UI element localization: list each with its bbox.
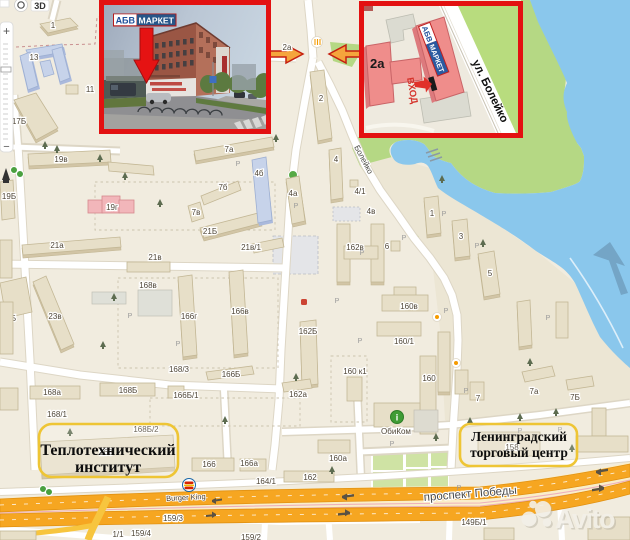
svg-text:Р: Р	[176, 341, 181, 348]
svg-text:7: 7	[476, 394, 481, 403]
svg-text:4а: 4а	[289, 189, 298, 198]
svg-text:21в: 21в	[148, 253, 161, 262]
svg-text:Р: Р	[128, 313, 133, 320]
svg-text:168/3: 168/3	[169, 365, 190, 374]
svg-text:162Б: 162Б	[299, 327, 318, 336]
svg-text:149Б/1: 149Б/1	[461, 518, 487, 527]
svg-text:2: 2	[319, 94, 324, 103]
svg-text:1: 1	[430, 209, 435, 218]
svg-text:160а: 160а	[329, 454, 347, 463]
svg-text:Р: Р	[402, 235, 407, 242]
svg-text:19г: 19г	[106, 203, 118, 212]
svg-text:159/3: 159/3	[163, 514, 184, 523]
svg-text:торговый центр: торговый центр	[470, 445, 568, 460]
svg-text:162: 162	[303, 473, 317, 482]
svg-text:4: 4	[334, 155, 339, 164]
svg-text:19Б: 19Б	[2, 192, 16, 201]
svg-text:4в: 4в	[367, 207, 376, 216]
svg-text:7в: 7в	[192, 208, 201, 217]
svg-text:Р: Р	[358, 338, 363, 345]
svg-text:−: −	[3, 141, 9, 153]
svg-text:Р: Р	[442, 211, 447, 218]
svg-text:7Б: 7Б	[570, 393, 580, 402]
svg-text:160: 160	[422, 374, 436, 383]
svg-text:13: 13	[30, 53, 39, 62]
svg-text:институт: институт	[75, 459, 141, 476]
svg-text:Р: Р	[444, 308, 449, 315]
svg-text:2а: 2а	[370, 56, 385, 71]
svg-text:МАРКЕТ: МАРКЕТ	[139, 15, 175, 25]
svg-text:ОбиКом: ОбиКом	[381, 427, 411, 436]
svg-text:Р: Р	[335, 298, 340, 305]
svg-text:164/1: 164/1	[256, 477, 277, 486]
svg-text:3D: 3D	[34, 1, 46, 11]
svg-text:Теплотехнический: Теплотехнический	[40, 442, 175, 459]
svg-text:168в: 168в	[139, 281, 157, 290]
svg-text:i: i	[396, 413, 399, 423]
svg-text:21в/1: 21в/1	[241, 243, 261, 252]
svg-text:4/1: 4/1	[354, 187, 366, 196]
svg-text:7а: 7а	[225, 145, 234, 154]
svg-text:166в: 166в	[231, 307, 249, 316]
svg-text:11: 11	[86, 85, 95, 94]
svg-text:166г: 166г	[181, 312, 197, 321]
svg-text:2а: 2а	[283, 43, 292, 52]
svg-text:Р: Р	[475, 243, 480, 250]
svg-text:159/2: 159/2	[241, 533, 262, 540]
svg-text:168Б: 168Б	[119, 386, 138, 395]
svg-text:160/1: 160/1	[394, 337, 415, 346]
svg-text:Р: Р	[236, 161, 241, 168]
svg-text:Ленинградский: Ленинградский	[471, 429, 567, 444]
svg-text:159/4: 159/4	[131, 529, 152, 538]
svg-text:166: 166	[202, 460, 216, 469]
svg-text:21Б: 21Б	[203, 227, 217, 236]
svg-text:+: +	[3, 24, 10, 38]
svg-text:Avito: Avito	[555, 504, 615, 534]
svg-text:166Б/1: 166Б/1	[173, 391, 199, 400]
svg-text:7а: 7а	[530, 387, 539, 396]
svg-text:3: 3	[459, 232, 464, 241]
svg-text:166а: 166а	[240, 459, 258, 468]
svg-text:168а: 168а	[43, 388, 61, 397]
svg-text:21а: 21а	[50, 241, 64, 250]
svg-text:Р: Р	[294, 203, 299, 210]
svg-text:4б: 4б	[254, 169, 263, 178]
svg-text:1/1: 1/1	[112, 530, 124, 539]
svg-text:5: 5	[488, 269, 493, 278]
svg-text:162а: 162а	[289, 390, 307, 399]
svg-text:Р: Р	[390, 441, 395, 448]
svg-text:166Б: 166Б	[222, 370, 241, 379]
svg-text:168/1: 168/1	[47, 410, 68, 419]
svg-text:6: 6	[385, 242, 390, 251]
svg-text:160в: 160в	[400, 302, 418, 311]
svg-text:Р: Р	[464, 388, 469, 395]
svg-text:7б: 7б	[218, 183, 227, 192]
svg-text:23в: 23в	[48, 312, 61, 321]
svg-text:АБВ: АБВ	[116, 16, 136, 26]
svg-text:160 к1: 160 к1	[343, 367, 367, 376]
svg-text:1: 1	[51, 21, 56, 30]
svg-text:17Б: 17Б	[12, 117, 26, 126]
svg-text:19в: 19в	[54, 155, 67, 164]
svg-text:Р: Р	[360, 250, 365, 257]
svg-text:Р: Р	[546, 315, 551, 322]
